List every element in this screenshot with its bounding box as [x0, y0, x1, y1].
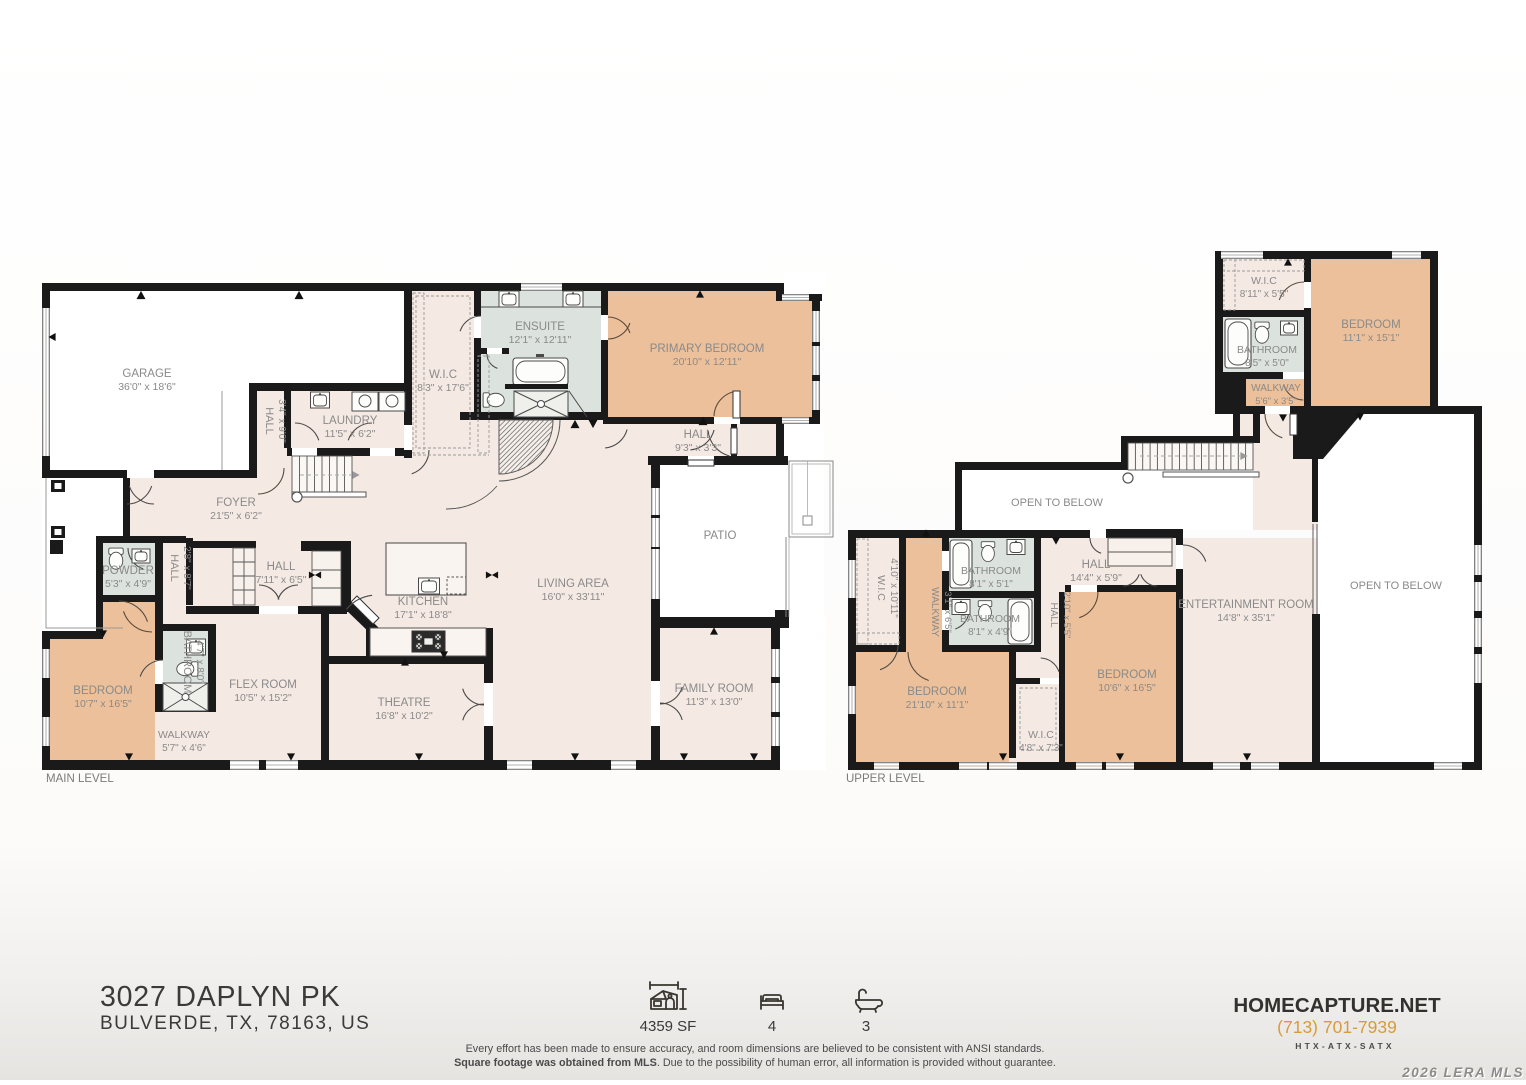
- svg-text:2026 LERA MLS: 2026 LERA MLS: [1401, 1065, 1524, 1080]
- svg-text:BATHROOM: BATHROOM: [961, 565, 1021, 577]
- svg-text:ENSUITE: ENSUITE: [515, 321, 565, 333]
- svg-text:W.I.C: W.I.C: [1251, 275, 1277, 287]
- svg-text:Every effort has been made to: Every effort has been made to ensure acc…: [466, 1043, 1045, 1055]
- svg-text:4'10" x 10'11": 4'10" x 10'11": [888, 558, 899, 618]
- svg-text:GARAGE: GARAGE: [122, 368, 172, 380]
- svg-text:17'1" x 18'8": 17'1" x 18'8": [394, 609, 452, 621]
- svg-text:BULVERDE, TX, 78163, US: BULVERDE, TX, 78163, US: [100, 1013, 370, 1034]
- svg-text:OPEN TO BELOW: OPEN TO BELOW: [1011, 497, 1104, 509]
- svg-text:OPEN TO BELOW: OPEN TO BELOW: [1350, 580, 1443, 592]
- svg-text:PATIO: PATIO: [704, 530, 737, 542]
- svg-text:HALL: HALL: [168, 554, 180, 582]
- svg-text:11'3" x 13'0": 11'3" x 13'0": [686, 696, 743, 708]
- svg-text:4'7" x 8'0": 4'7" x 8'0": [194, 640, 205, 684]
- svg-text:BATHROOM: BATHROOM: [1237, 344, 1297, 356]
- svg-text:21'5" x 6'2": 21'5" x 6'2": [210, 510, 262, 522]
- svg-text:ENTERTAINMENT ROOM: ENTERTAINMENT ROOM: [1178, 599, 1313, 611]
- svg-text:THEATRE: THEATRE: [378, 697, 431, 709]
- svg-text:8'11" x 5'5": 8'11" x 5'5": [1240, 289, 1289, 300]
- svg-text:5'6" x 3'5": 5'6" x 3'5": [1255, 396, 1297, 407]
- svg-text:(713) 701-7939: (713) 701-7939: [1277, 1017, 1397, 1037]
- svg-text:2'8" x 8'7": 2'8" x 8'7": [181, 546, 192, 590]
- svg-text:BATHROOM: BATHROOM: [960, 613, 1020, 625]
- svg-text:WALKWAY: WALKWAY: [929, 587, 940, 637]
- svg-text:FOYER: FOYER: [216, 497, 256, 509]
- svg-text:HTX-ATX-SATX: HTX-ATX-SATX: [1295, 1041, 1394, 1051]
- svg-text:11'5" x 6'2": 11'5" x 6'2": [325, 428, 376, 440]
- svg-text:14'8" x 35'1": 14'8" x 35'1": [1217, 612, 1275, 624]
- svg-text:PRIMARY BEDROOM: PRIMARY BEDROOM: [650, 343, 765, 355]
- svg-text:5'3" x 4'9": 5'3" x 4'9": [105, 578, 151, 590]
- svg-text:10'6" x 16'5": 10'6" x 16'5": [1098, 682, 1156, 694]
- svg-text:3: 3: [862, 1018, 870, 1035]
- svg-text:8'3" x 17'6": 8'3" x 17'6": [417, 382, 469, 394]
- svg-text:8'1" x 4'9": 8'1" x 4'9": [968, 627, 1012, 638]
- svg-text:4359 SF: 4359 SF: [640, 1018, 697, 1035]
- svg-text:UPPER LEVEL: UPPER LEVEL: [846, 773, 925, 785]
- svg-text:36'0" x 18'6": 36'0" x 18'6": [118, 381, 176, 393]
- svg-text:3027 DAPLYN PK: 3027 DAPLYN PK: [100, 981, 340, 1013]
- svg-text:12'1" x 12'11": 12'1" x 12'11": [509, 334, 572, 346]
- svg-text:HALL: HALL: [684, 429, 713, 441]
- svg-text:BEDROOM: BEDROOM: [907, 686, 966, 698]
- svg-text:10'5" x 15'2": 10'5" x 15'2": [234, 692, 292, 704]
- svg-text:W.I.C: W.I.C: [1028, 729, 1054, 741]
- svg-text:10'7" x 16'5": 10'7" x 16'5": [74, 698, 132, 710]
- svg-text:HALL: HALL: [1082, 559, 1111, 571]
- svg-text:BEDROOM: BEDROOM: [73, 685, 132, 697]
- svg-text:FLEX ROOM: FLEX ROOM: [229, 679, 297, 691]
- svg-text:MAIN LEVEL: MAIN LEVEL: [46, 773, 114, 785]
- svg-text:2'10" x 5'5": 2'10" x 5'5": [1061, 592, 1072, 639]
- svg-text:BATHROOM: BATHROOM: [181, 631, 193, 694]
- svg-text:4: 4: [768, 1018, 776, 1035]
- svg-text:WALKWAY: WALKWAY: [158, 729, 210, 741]
- svg-text:HALL: HALL: [263, 407, 275, 435]
- svg-text:POWDER: POWDER: [102, 565, 154, 577]
- svg-text:11'1" x 15'1": 11'1" x 15'1": [1343, 332, 1400, 344]
- svg-text:BEDROOM: BEDROOM: [1097, 669, 1156, 681]
- svg-text:HOMECAPTURE.NET: HOMECAPTURE.NET: [1233, 994, 1441, 1017]
- svg-text:3'4" x 9'0": 3'4" x 9'0": [276, 399, 287, 443]
- svg-text:4'8" x 7'3": 4'8" x 7'3": [1019, 743, 1063, 754]
- svg-text:FAMILY ROOM: FAMILY ROOM: [675, 683, 754, 695]
- svg-text:HALL: HALL: [1048, 602, 1059, 627]
- svg-text:W.I.C: W.I.C: [875, 575, 887, 601]
- svg-text:7'11" x 6'5": 7'11" x 6'5": [256, 574, 307, 586]
- svg-text:Square footage was obtained fr: Square footage was obtained from MLS. Du…: [454, 1057, 1056, 1069]
- svg-text:HALL: HALL: [267, 561, 296, 573]
- svg-text:16'8" x 10'2": 16'8" x 10'2": [375, 710, 433, 722]
- svg-text:20'10" x 12'11": 20'10" x 12'11": [673, 356, 742, 368]
- svg-text:KITCHEN: KITCHEN: [398, 596, 448, 608]
- svg-text:LIVING AREA: LIVING AREA: [537, 578, 609, 590]
- svg-text:W.I.C: W.I.C: [429, 369, 457, 381]
- svg-text:8'5" x 5'0": 8'5" x 5'0": [1245, 358, 1289, 369]
- svg-text:BEDROOM: BEDROOM: [1341, 319, 1400, 331]
- svg-text:21'10" x 11'1": 21'10" x 11'1": [906, 699, 969, 711]
- svg-text:9'3" x 3'3": 9'3" x 3'3": [675, 442, 721, 454]
- svg-text:LAUNDRY: LAUNDRY: [323, 415, 378, 427]
- svg-text:16'0" x 33'11": 16'0" x 33'11": [542, 591, 605, 603]
- svg-text:14'4" x 5'9": 14'4" x 5'9": [1070, 572, 1122, 584]
- svg-text:WALKWAY: WALKWAY: [1251, 383, 1301, 394]
- svg-text:5'7" x 4'6": 5'7" x 4'6": [162, 743, 206, 754]
- svg-text:3'1" x 6'5": 3'1" x 6'5": [942, 591, 953, 633]
- svg-text:8'1" x 5'1": 8'1" x 5'1": [969, 579, 1013, 590]
